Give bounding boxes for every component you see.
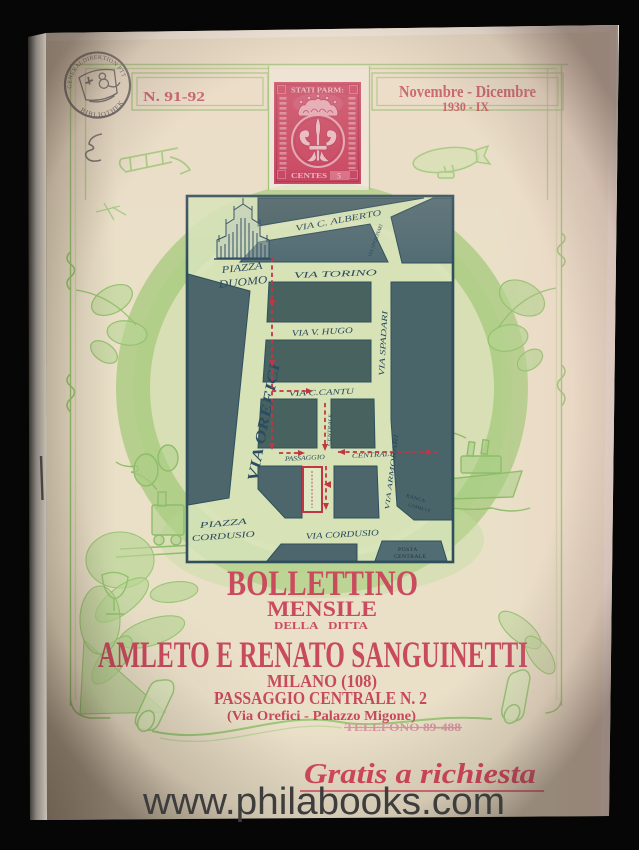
svg-text:www.philabooks.com: www.philabooks.com	[142, 781, 505, 823]
